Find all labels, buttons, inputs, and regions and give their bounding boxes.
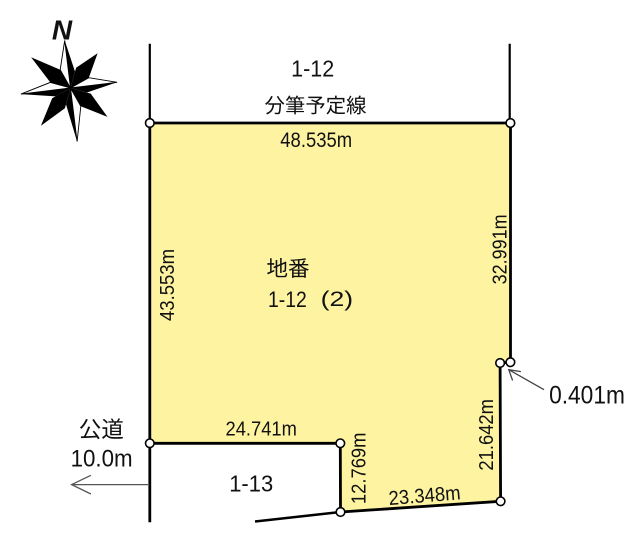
svg-text:21.642m: 21.642m <box>476 399 498 471</box>
svg-text:12.769m: 12.769m <box>349 432 371 504</box>
svg-text:48.535m: 48.535m <box>280 129 352 152</box>
svg-text:0.401m: 0.401m <box>549 382 625 410</box>
svg-text:N: N <box>52 15 73 46</box>
svg-text:10.0m: 10.0m <box>71 445 133 472</box>
svg-text:32.991m: 32.991m <box>489 214 511 284</box>
svg-text:24.741m: 24.741m <box>226 418 297 440</box>
svg-text:(2): (2) <box>321 287 354 311</box>
svg-text:43.553m: 43.553m <box>157 249 179 321</box>
svg-text:1-12: 1-12 <box>268 287 307 312</box>
svg-text:1-13: 1-13 <box>229 470 273 496</box>
svg-text:1-12: 1-12 <box>291 56 334 82</box>
